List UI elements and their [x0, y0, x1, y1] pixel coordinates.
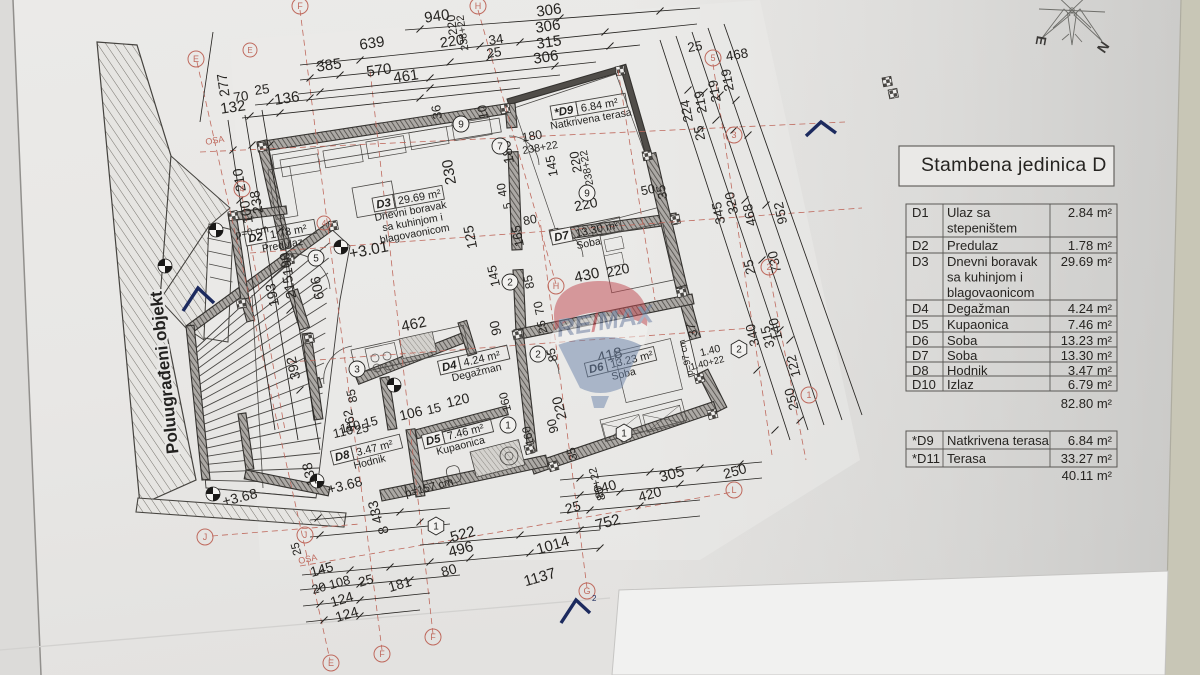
svg-text:E: E	[247, 46, 252, 55]
svg-text:F: F	[297, 1, 303, 11]
svg-text:639: 639	[358, 33, 385, 53]
svg-text:Natkrivena terasa: Natkrivena terasa	[947, 433, 1050, 448]
svg-text:3.47 m²: 3.47 m²	[1068, 363, 1113, 378]
svg-text:4: 4	[322, 219, 327, 228]
svg-text:H: H	[553, 281, 560, 291]
svg-text:sa kuhinjom i: sa kuhinjom i	[947, 269, 1023, 284]
svg-text:D7: D7	[912, 348, 929, 363]
svg-text:2.84 m²: 2.84 m²	[1068, 205, 1113, 220]
svg-text:25: 25	[691, 124, 708, 141]
svg-text:6.79 m²: 6.79 m²	[1068, 377, 1113, 392]
svg-text:Stambena jedinica D: Stambena jedinica D	[921, 154, 1107, 176]
svg-text:D3: D3	[912, 254, 929, 269]
svg-text:90: 90	[487, 319, 505, 337]
svg-text:E: E	[328, 658, 334, 668]
svg-text:Degažman: Degažman	[947, 301, 1010, 316]
svg-text:1: 1	[505, 421, 511, 432]
svg-text:E: E	[193, 54, 199, 64]
svg-text:*D9: *D9	[912, 433, 934, 448]
svg-text:1: 1	[433, 522, 439, 533]
svg-text:33.27 m²: 33.27 m²	[1061, 451, 1113, 466]
svg-text:5: 5	[710, 53, 715, 63]
svg-text:25: 25	[253, 81, 270, 98]
svg-text:3: 3	[354, 365, 360, 376]
svg-text:9: 9	[458, 120, 464, 131]
svg-text:5: 5	[313, 254, 319, 265]
svg-text:Ulaz sa: Ulaz sa	[947, 205, 991, 220]
svg-text:9: 9	[584, 189, 590, 200]
svg-text:7: 7	[497, 142, 503, 153]
svg-text:L: L	[731, 485, 736, 495]
svg-text:385: 385	[315, 55, 342, 75]
svg-text:6.84 m²: 6.84 m²	[1068, 433, 1113, 448]
svg-text:*D11: *D11	[912, 451, 940, 466]
svg-text:2: 2	[507, 278, 513, 289]
svg-text:2: 2	[766, 262, 771, 272]
svg-text:stepeništem: stepeništem	[947, 220, 1017, 235]
svg-text:4: 4	[239, 184, 244, 194]
svg-text:F: F	[379, 649, 385, 659]
svg-text:D4: D4	[912, 301, 929, 316]
svg-text:36: 36	[428, 104, 445, 121]
svg-text:D1: D1	[912, 205, 929, 220]
svg-text:82.80 m²: 82.80 m²	[1061, 396, 1113, 411]
svg-text:1.78 m²: 1.78 m²	[1068, 238, 1113, 253]
svg-text:Izlaz: Izlaz	[947, 377, 974, 392]
svg-text:Soba: Soba	[947, 348, 978, 363]
svg-text:Terasa: Terasa	[947, 451, 987, 466]
svg-text:13.23 m²: 13.23 m²	[1061, 333, 1113, 348]
svg-text:Predulaz: Predulaz	[947, 238, 998, 253]
svg-text:29.69 m²: 29.69 m²	[1061, 254, 1113, 269]
svg-text:Dnevni boravak: Dnevni boravak	[947, 254, 1038, 269]
svg-text:25: 25	[485, 44, 502, 61]
svg-text:J: J	[303, 530, 308, 540]
svg-text:G: G	[583, 586, 590, 596]
svg-text:3: 3	[731, 130, 736, 140]
svg-text:D5: D5	[912, 317, 929, 332]
svg-text:277: 277	[213, 72, 232, 98]
svg-text:2: 2	[736, 345, 742, 356]
svg-text:2: 2	[535, 350, 541, 361]
svg-text:40.11 m²: 40.11 m²	[1062, 468, 1113, 483]
svg-text:40: 40	[494, 182, 510, 198]
svg-text:H: H	[475, 1, 482, 11]
svg-text:F: F	[430, 632, 436, 642]
svg-text:13.30 m²: 13.30 m²	[1061, 348, 1113, 363]
svg-text:J: J	[203, 532, 208, 542]
svg-text:D8: D8	[912, 363, 929, 378]
svg-text:D10: D10	[912, 377, 936, 392]
svg-text:D6: D6	[912, 333, 929, 348]
svg-text:Soba: Soba	[947, 333, 978, 348]
svg-text:80: 80	[522, 212, 538, 228]
svg-text:blagovaonicom: blagovaonicom	[947, 285, 1034, 300]
svg-text:1: 1	[621, 429, 627, 440]
svg-text:2: 2	[592, 594, 597, 603]
svg-text:10: 10	[474, 104, 491, 121]
svg-text:Hodnik: Hodnik	[947, 363, 988, 378]
svg-text:Kupaonica: Kupaonica	[947, 317, 1009, 332]
svg-text:4.24 m²: 4.24 m²	[1068, 301, 1113, 316]
svg-text:35: 35	[653, 184, 671, 201]
svg-text:1: 1	[806, 390, 811, 400]
svg-text:7.46 m²: 7.46 m²	[1068, 317, 1113, 332]
svg-text:D2: D2	[912, 238, 929, 253]
